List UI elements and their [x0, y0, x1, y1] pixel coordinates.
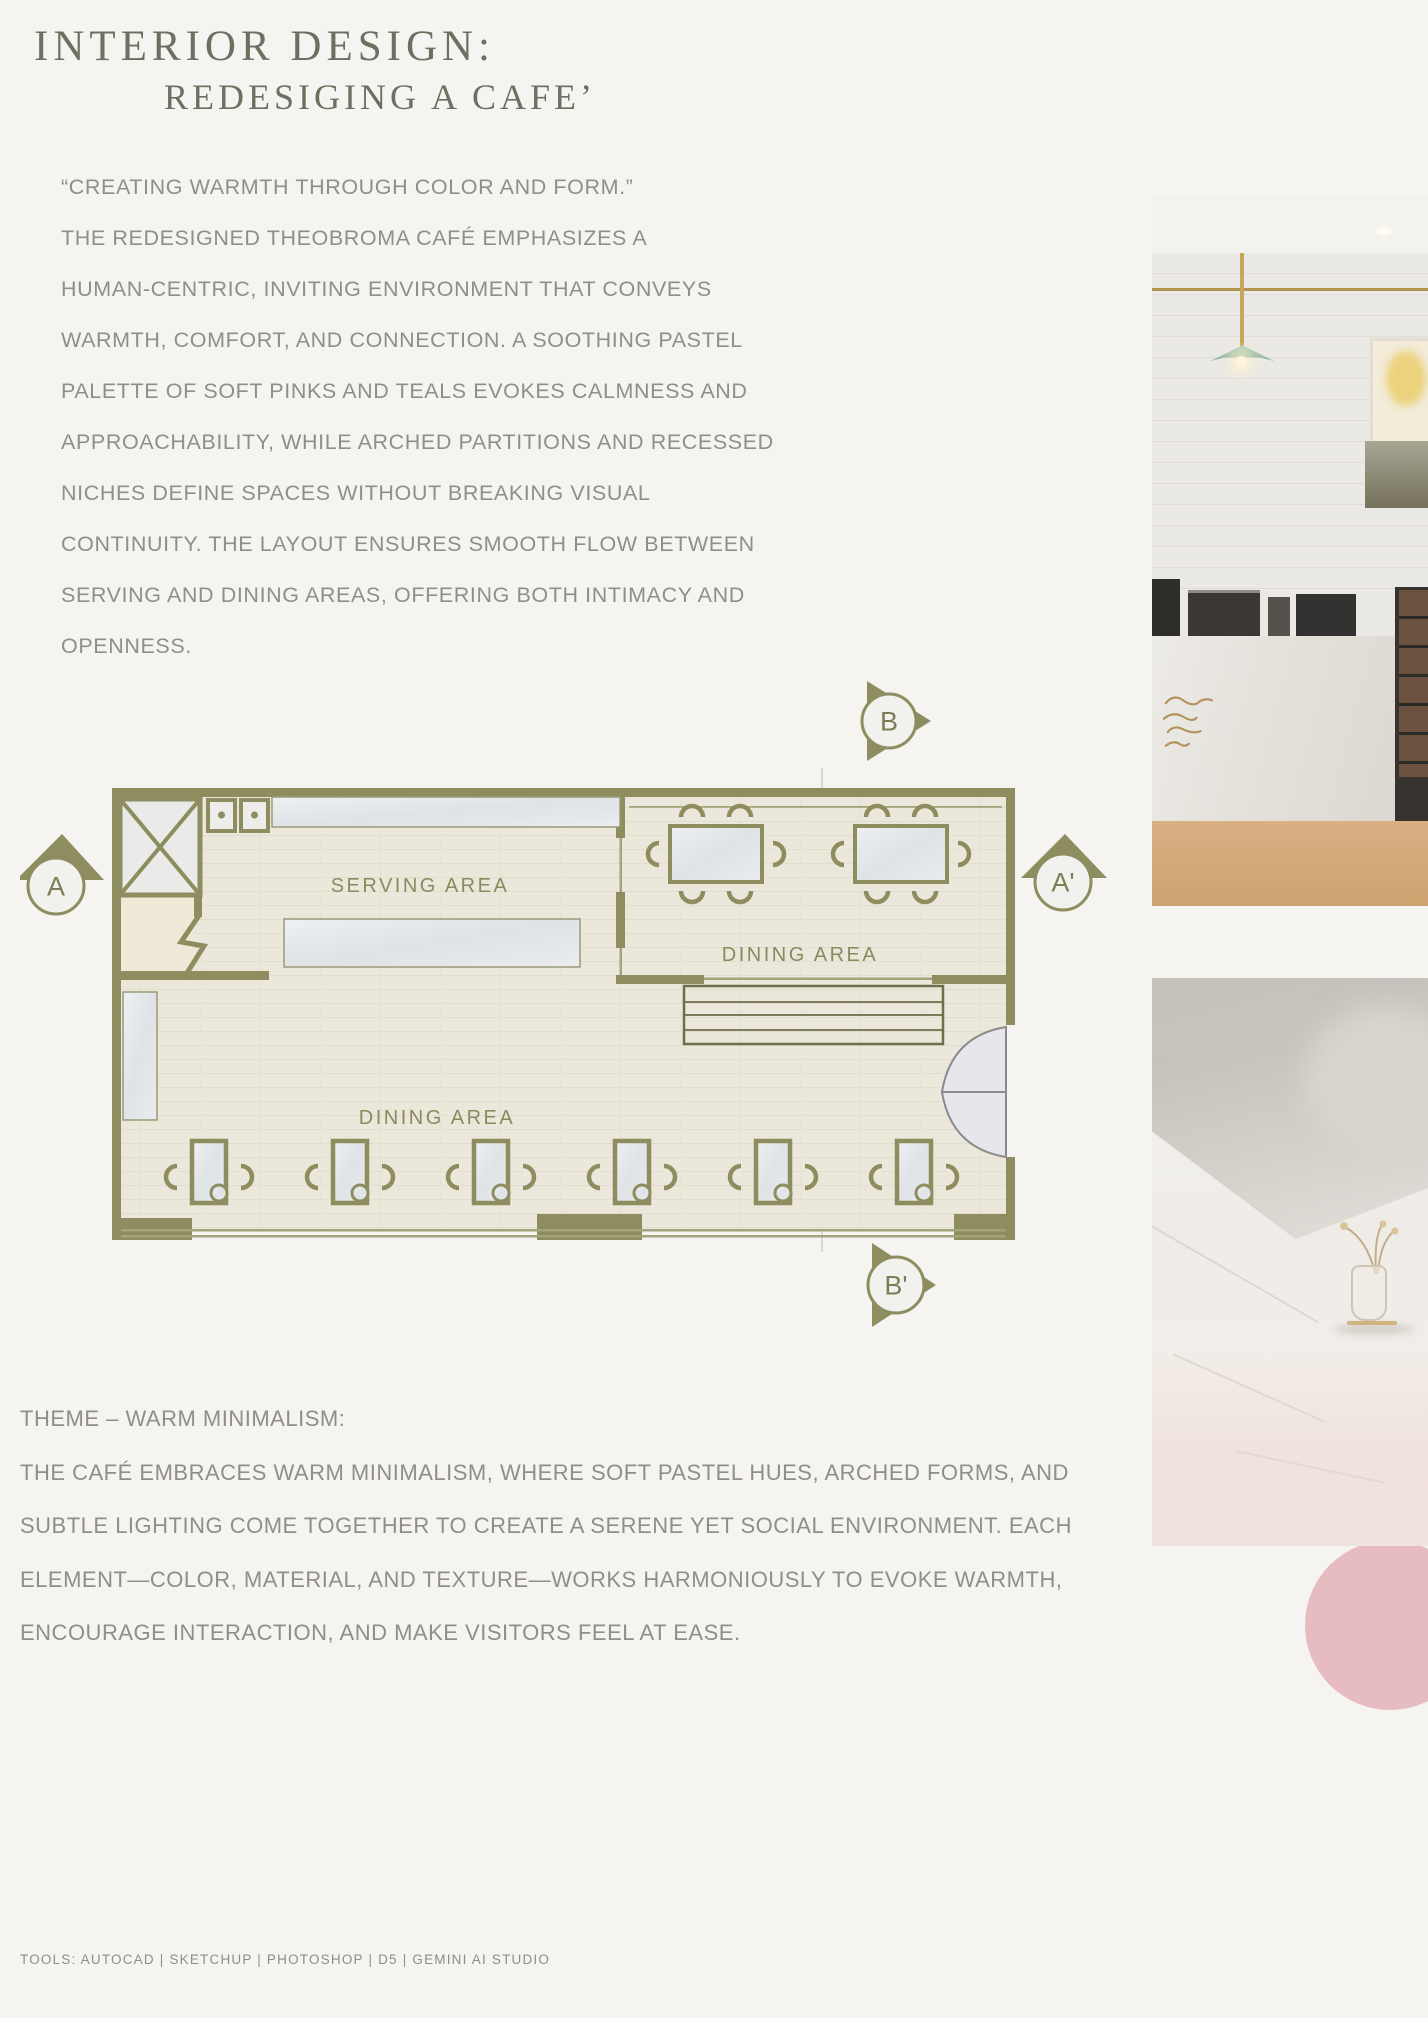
section-marker-a: A — [20, 834, 104, 914]
svg-text:B': B' — [884, 1270, 907, 1300]
photo-cafe-interior — [1152, 196, 1428, 906]
svg-text:B: B — [880, 706, 898, 736]
section-marker-a-prime: A' — [1021, 834, 1107, 910]
intro-line: THE REDESIGNED THEOBROMA CAFÉ EMPHASIZES… — [61, 213, 774, 264]
pink-accent-circle — [1305, 1540, 1428, 1710]
section-marker-b-prime: B' — [868, 1243, 936, 1327]
theme-line: SUBTLE LIGHTING COME TOGETHER TO CREATE … — [20, 1499, 1072, 1553]
plan-side-room-floor — [121, 895, 194, 971]
floor-plan: SERVING AREA DINING AREA DINING AREA A A… — [20, 640, 1130, 1370]
theme-line: ENCOURAGE INTERACTION, AND MAKE VISITORS… — [20, 1606, 1072, 1660]
intro-line: HUMAN-CENTRIC, INVITING ENVIRONMENT THAT… — [61, 264, 774, 315]
bench-steps — [684, 986, 943, 1044]
dining-area-lower-label: DINING AREA — [359, 1107, 515, 1129]
wall-artwork — [1370, 338, 1428, 445]
photo-marble-closeup — [1152, 978, 1428, 1546]
pendant-rod — [1240, 253, 1244, 349]
wood-counter-base — [1152, 821, 1428, 906]
theme-heading: THEME – WARM MINIMALISM: — [20, 1392, 1072, 1446]
intro-line: SERVING AND DINING AREAS, OFFERING BOTH … — [61, 570, 774, 621]
wall-counter-slab — [123, 992, 157, 1120]
intro-line: CONTINUITY. THE LAYOUT ENSURES SMOOTH FL… — [61, 519, 774, 570]
dining-area-upper-label: DINING AREA — [722, 944, 878, 966]
intro-line: “CREATING WARMTH THROUGH COLOR AND FORM.… — [61, 162, 774, 213]
back-counter — [272, 797, 620, 827]
page-subtitle: REDESIGING A CAFE’ — [164, 76, 596, 118]
brass-rail — [1152, 288, 1428, 291]
page-title: INTERIOR DESIGN: — [34, 22, 495, 71]
ceiling — [1152, 196, 1428, 253]
counter-hood — [1365, 441, 1428, 508]
glass-vase — [1351, 1265, 1387, 1321]
artwork-image — [1386, 351, 1425, 406]
serving-area-label: SERVING AREA — [331, 875, 510, 897]
intro-paragraph: “CREATING WARMTH THROUGH COLOR AND FORM.… — [61, 162, 774, 672]
pink-light-tint — [1152, 1353, 1428, 1546]
theme-line: THE CAFÉ EMBRACES WARM MINIMALISM, WHERE… — [20, 1446, 1072, 1500]
tools-footer: TOOLS: AUTOCAD | SKETCHUP | PHOTOSHOP | … — [20, 1952, 550, 1967]
presentation-board: INTERIOR DESIGN: REDESIGING A CAFE’ “CRE… — [0, 0, 1428, 2018]
intro-line: APPROACHABILITY, WHILE ARCHED PARTITIONS… — [61, 417, 774, 468]
recessed-light — [1376, 228, 1392, 235]
svg-text:A': A' — [1051, 867, 1074, 897]
vase-gold-base — [1347, 1321, 1397, 1325]
intro-line: PALETTE OF SOFT PINKS AND TEALS EVOKES C… — [61, 366, 774, 417]
display-shelves — [1399, 590, 1428, 777]
stair-shaft — [120, 799, 200, 895]
svg-text:A: A — [47, 871, 65, 901]
intro-line: WARMTH, COMFORT, AND CONNECTION. A SOOTH… — [61, 315, 774, 366]
intro-line: NICHES DEFINE SPACES WITHOUT BREAKING VI… — [61, 468, 774, 519]
theme-paragraph: THEME – WARM MINIMALISM: THE CAFÉ EMBRAC… — [20, 1392, 1072, 1660]
pastry-display-case — [1395, 587, 1428, 821]
gold-script-signage — [1158, 668, 1274, 789]
serving-island-counter — [284, 919, 580, 967]
section-marker-b: B — [862, 681, 931, 761]
theme-line: ELEMENT—COLOR, MATERIAL, AND TEXTURE—WOR… — [20, 1553, 1072, 1607]
